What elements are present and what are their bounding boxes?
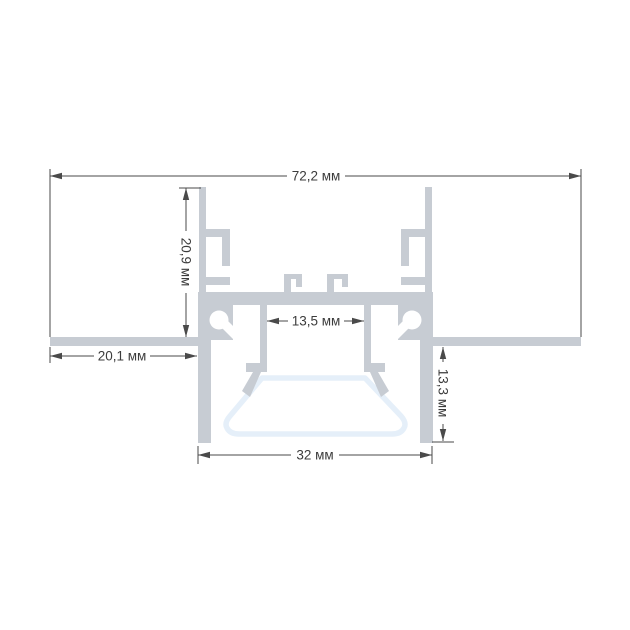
clip-arm-top-left xyxy=(206,229,230,237)
arrow-channel-left xyxy=(267,318,279,324)
arrow-flange-right xyxy=(185,353,197,359)
base-plate xyxy=(198,292,433,305)
center-hook-right xyxy=(327,274,348,292)
dim-label-recess-depth: 13,3 мм xyxy=(436,369,451,418)
arrow-recess-top xyxy=(440,347,446,359)
profile-right-side xyxy=(364,187,581,443)
clip-leg-left xyxy=(222,237,230,266)
plaster-flange-left xyxy=(50,337,200,346)
drawing-canvas: 72,2 мм 20,9 мм 13,5 мм 20,1 мм 13,3 мм … xyxy=(0,0,630,630)
arrow-overall-right xyxy=(569,173,581,179)
dim-label-led-channel-width: 13,5 мм xyxy=(292,314,341,329)
arrow-overall-left xyxy=(50,173,62,179)
side-wall-left xyxy=(198,337,211,443)
arrow-wing-bottom xyxy=(183,325,189,337)
arrow-wing-top xyxy=(183,188,189,200)
arrow-recess-bottom xyxy=(440,429,446,441)
arrow-flange-left xyxy=(50,353,62,359)
inner-wall-left xyxy=(260,305,267,372)
arrow-base-right xyxy=(420,452,432,458)
center-hook-left xyxy=(284,274,302,292)
dim-label-wing-height: 20,9 мм xyxy=(179,238,194,287)
arrow-base-left xyxy=(198,452,210,458)
arrow-channel-right xyxy=(352,318,364,324)
profile-left-side xyxy=(50,187,267,443)
diffuser-tab-left xyxy=(246,363,267,372)
profile-cross-section-drawing: 72,2 мм 20,9 мм 13,5 мм 20,1 мм 13,3 мм … xyxy=(0,0,630,630)
dim-label-flange-width: 20,1 мм xyxy=(98,349,147,364)
clip-arm-bottom-left xyxy=(206,277,230,285)
dim-label-base-width: 32 мм xyxy=(296,448,333,463)
dim-label-overall-width: 72,2 мм xyxy=(292,169,341,184)
outer-wing-left xyxy=(199,187,206,292)
